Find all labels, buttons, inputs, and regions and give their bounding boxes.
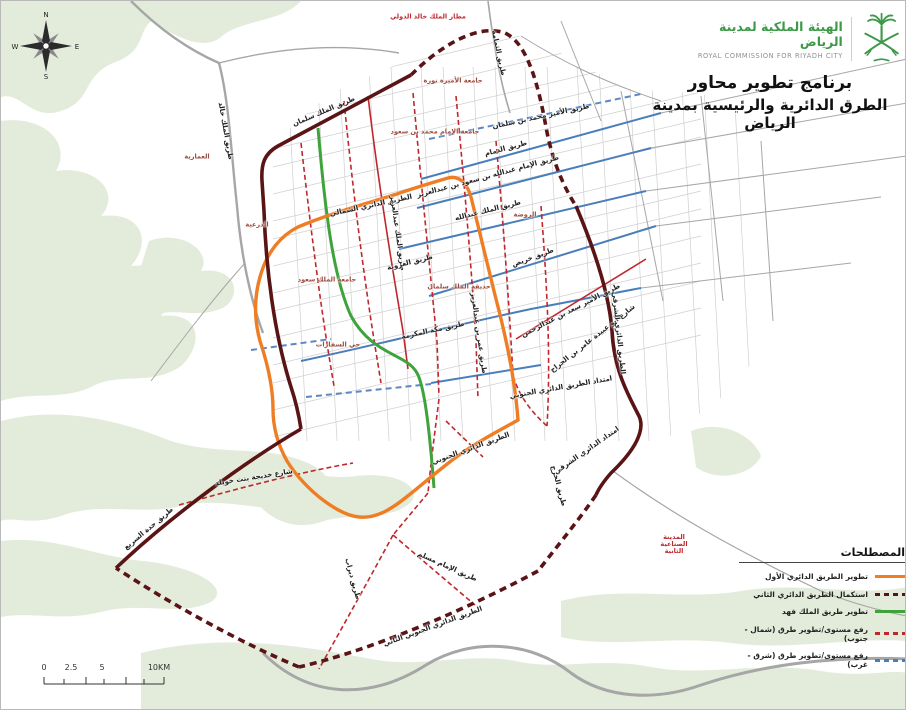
- scale-0: 0: [41, 663, 46, 672]
- green-solid-swatch: [875, 610, 905, 613]
- scale-10km: 10KM: [148, 663, 170, 672]
- scale-2-5: 2.5: [65, 663, 78, 672]
- title-line-1: برنامج تطوير محاور: [637, 73, 903, 93]
- legend-item-ring1: تطوير الطريق الدائري الأول: [739, 572, 905, 581]
- blue-dashed-swatch: [875, 659, 905, 662]
- legend-item-king-fahd: تطوير طريق الملك فهد: [739, 607, 905, 616]
- legend-title: المصطلحات: [739, 546, 905, 559]
- compass-w: W: [12, 43, 19, 51]
- legend: المصطلحات تطوير الطريق الدائري الأول است…: [739, 546, 905, 678]
- compass-e: E: [75, 43, 79, 51]
- title-line-2: الطرق الدائرية والرئيسية بمدينة الرياض: [637, 96, 903, 132]
- scale-bar: 0 2.5 5 10KM: [19, 663, 179, 695]
- map-document: مطار الملك خالد الدوليطريق الثمامةجامعة …: [0, 0, 906, 710]
- org-names: الهيئة الملكية لمدينة الرياض ROYAL COMMI…: [689, 17, 852, 61]
- org-name-arabic: الهيئة الملكية لمدينة الرياض: [689, 19, 843, 49]
- maroon-dashed-swatch: [875, 593, 905, 596]
- map-title: برنامج تطوير محاور الطرق الدائرية والرئي…: [637, 73, 903, 132]
- compass-n: N: [43, 11, 48, 19]
- orange-solid-swatch: [875, 575, 905, 578]
- header: الهيئة الملكية لمدينة الرياض ROYAL COMMI…: [689, 11, 903, 67]
- legend-item-ew-upgrade: رفع مستوى/تطوير طرق (شرق - غرب): [739, 651, 905, 669]
- east-west-blue-roads: [301, 113, 661, 383]
- org-name-english: ROYAL COMMISSION FOR RIYADH CITY: [689, 52, 843, 60]
- scale-ruler: [19, 675, 179, 693]
- scale-5: 5: [99, 663, 104, 672]
- saudi-palm-swords-emblem: [860, 11, 903, 67]
- compass-s: S: [44, 73, 49, 81]
- legend-item-ring2: استكمال الطريق الدائري الثاني: [739, 590, 905, 599]
- legend-item-ns-upgrade: رفع مستوى/تطوير طرق (شمال - جنوب): [739, 625, 905, 643]
- east-west-upgrade-dashed: [251, 94, 641, 397]
- king-fahd-road: [318, 128, 434, 488]
- legend-divider: [739, 562, 905, 563]
- red-dashed-swatch: [875, 632, 905, 635]
- north-south-red-solid: [368, 96, 646, 369]
- compass-rose: N E S W: [11, 9, 81, 81]
